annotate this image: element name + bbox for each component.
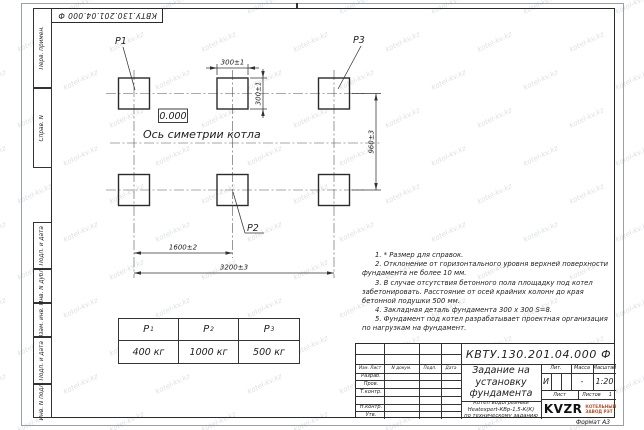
company-name: КОТЕЛЬНЫЙ ЗАВОД РЭТ: [585, 404, 616, 414]
document-subtitle: Котел водогрейный Heatexpert-КВр-1,5-К(К…: [461, 401, 541, 419]
row-blank: [356, 396, 384, 404]
elevation-mark: 0.000: [159, 111, 186, 122]
sheets-label: Листов: [582, 392, 601, 398]
company-cell: KVZR КОТЕЛЬНЫЙ ЗАВОД РЭТ: [541, 399, 616, 419]
leader-p1: [123, 47, 135, 90]
sheet-label: Лист: [541, 390, 578, 399]
note-2: 2. Отклонение от горизонтального уровня …: [362, 260, 615, 278]
technical-notes: 1. * Размер для справок. 2. Отклонение о…: [362, 251, 615, 334]
foundation-pads: [119, 78, 350, 206]
dim-overall: 3200±3: [220, 264, 248, 272]
row-razrab: Разраб.: [356, 373, 384, 381]
format-label: Формат А3: [568, 419, 618, 426]
row-utv: Утв.: [356, 411, 384, 419]
title-block: КВТУ.130.201.04.000 Ф Изм. Лист N докум.…: [355, 343, 615, 418]
note-4: 4. Закладная деталь фундамента 300 x 300…: [362, 306, 615, 315]
col-izm-list: Изм. Лист: [356, 364, 384, 373]
load-value-p1: 400 кг: [119, 341, 179, 363]
note-1: 1. * Размер для справок.: [362, 251, 615, 260]
dim-pad-height: 300±1: [255, 82, 263, 106]
load-value-p3: 500 кг: [239, 341, 299, 363]
note-3: 3. В случае отсутствия бетонного пола пл…: [362, 279, 615, 307]
anchor-label-p2: P2: [247, 223, 259, 234]
lit-label: Лит.: [541, 364, 571, 373]
note-5: 5. Фундамент под котел разрабатывает про…: [362, 315, 615, 333]
row-prov: Пров.: [356, 380, 384, 388]
load-value-p2: 1000 кг: [179, 341, 239, 363]
leader-p2: [233, 192, 245, 233]
dim-row-spacing: 960±3: [368, 130, 376, 154]
scale-label: Масштаб: [593, 364, 616, 373]
dim-col-spacing: 1600±2: [169, 244, 198, 252]
drawing-sheet: kotel-kv.kzkotel-kv.kzkotel-kv.kzkotel-k…: [0, 0, 644, 430]
kvzr-logo-text: KVZR: [544, 402, 583, 416]
document-title: Задание на установку фундамента: [461, 364, 541, 401]
scale-value: 1:20: [593, 373, 616, 391]
lit-value: И: [541, 373, 551, 391]
anchor-label-p1: P1: [115, 36, 127, 47]
load-header-p3: P3: [239, 319, 299, 341]
sheets-value: 1: [609, 392, 612, 398]
col-data: Дата: [441, 364, 461, 373]
loads-table: P1 P2 P3 400 кг 1000 кг 500 кг: [118, 318, 300, 364]
load-header-p2: P2: [179, 319, 239, 341]
col-n-dokum: N докум.: [384, 364, 419, 373]
sheets-cell: Листов 1: [578, 390, 616, 399]
mass-label: Масса: [571, 364, 593, 373]
load-header-p1: P1: [119, 319, 179, 341]
mass-value: -: [571, 373, 593, 391]
row-tkontr: Т.контр.: [356, 388, 384, 396]
axis-caption: Ось симетрии котла: [143, 128, 261, 141]
doc-number: КВТУ.130.201.04.000 Ф: [461, 344, 616, 364]
anchor-label-p3: P3: [353, 35, 365, 46]
dim-pad-width: 300±1: [221, 59, 245, 67]
row-nkontr: Н.контр.: [356, 404, 384, 412]
col-podp: Подп.: [419, 364, 441, 373]
